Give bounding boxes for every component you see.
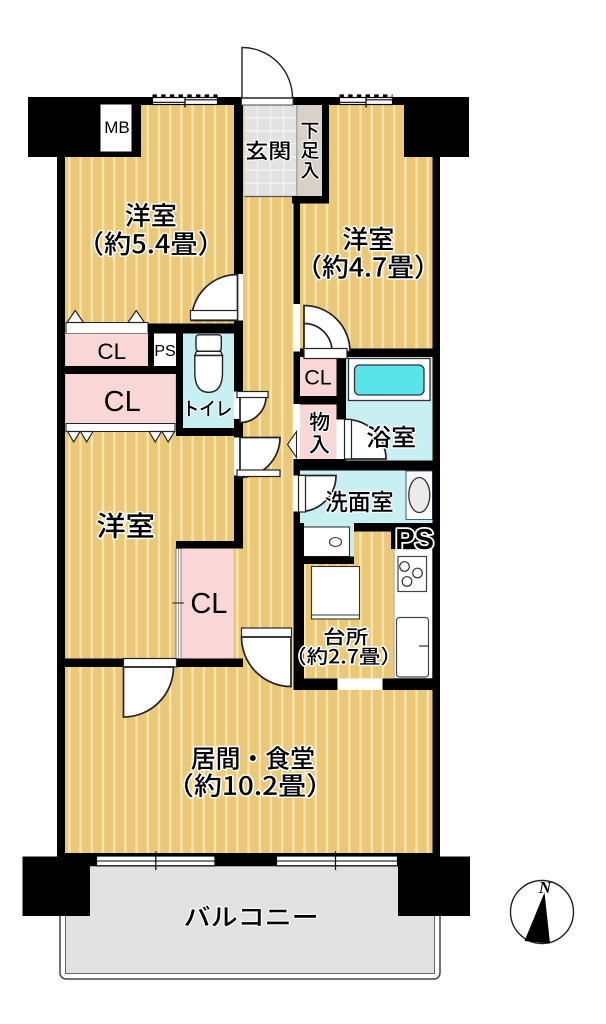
svg-text:PS: PS [395, 524, 434, 556]
svg-text:N: N [538, 878, 552, 897]
svg-text:CL: CL [304, 366, 332, 390]
svg-text:CL: CL [104, 386, 141, 418]
svg-text:MB: MB [104, 118, 130, 137]
svg-text:CL: CL [190, 588, 227, 620]
svg-text:PS: PS [154, 343, 175, 360]
svg-text:CL: CL [97, 339, 126, 364]
